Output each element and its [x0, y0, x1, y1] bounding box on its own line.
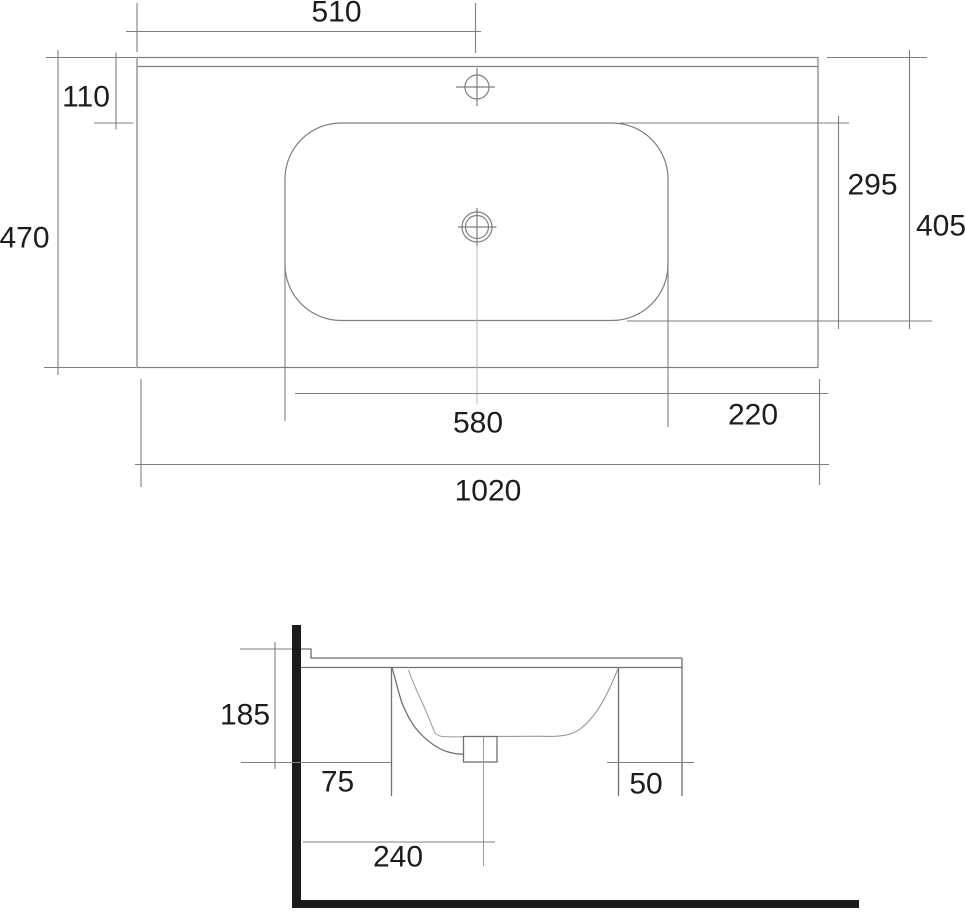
- svg-text:580: 580: [453, 407, 503, 440]
- svg-text:405: 405: [916, 210, 965, 243]
- svg-text:470: 470: [0, 222, 50, 255]
- svg-text:50: 50: [629, 768, 662, 801]
- svg-text:185: 185: [220, 699, 270, 732]
- svg-text:220: 220: [728, 399, 778, 432]
- svg-text:240: 240: [373, 841, 423, 874]
- svg-text:110: 110: [62, 81, 110, 114]
- svg-text:75: 75: [321, 766, 354, 799]
- svg-text:510: 510: [311, 0, 361, 29]
- svg-text:1020: 1020: [455, 475, 522, 508]
- svg-text:295: 295: [847, 169, 897, 202]
